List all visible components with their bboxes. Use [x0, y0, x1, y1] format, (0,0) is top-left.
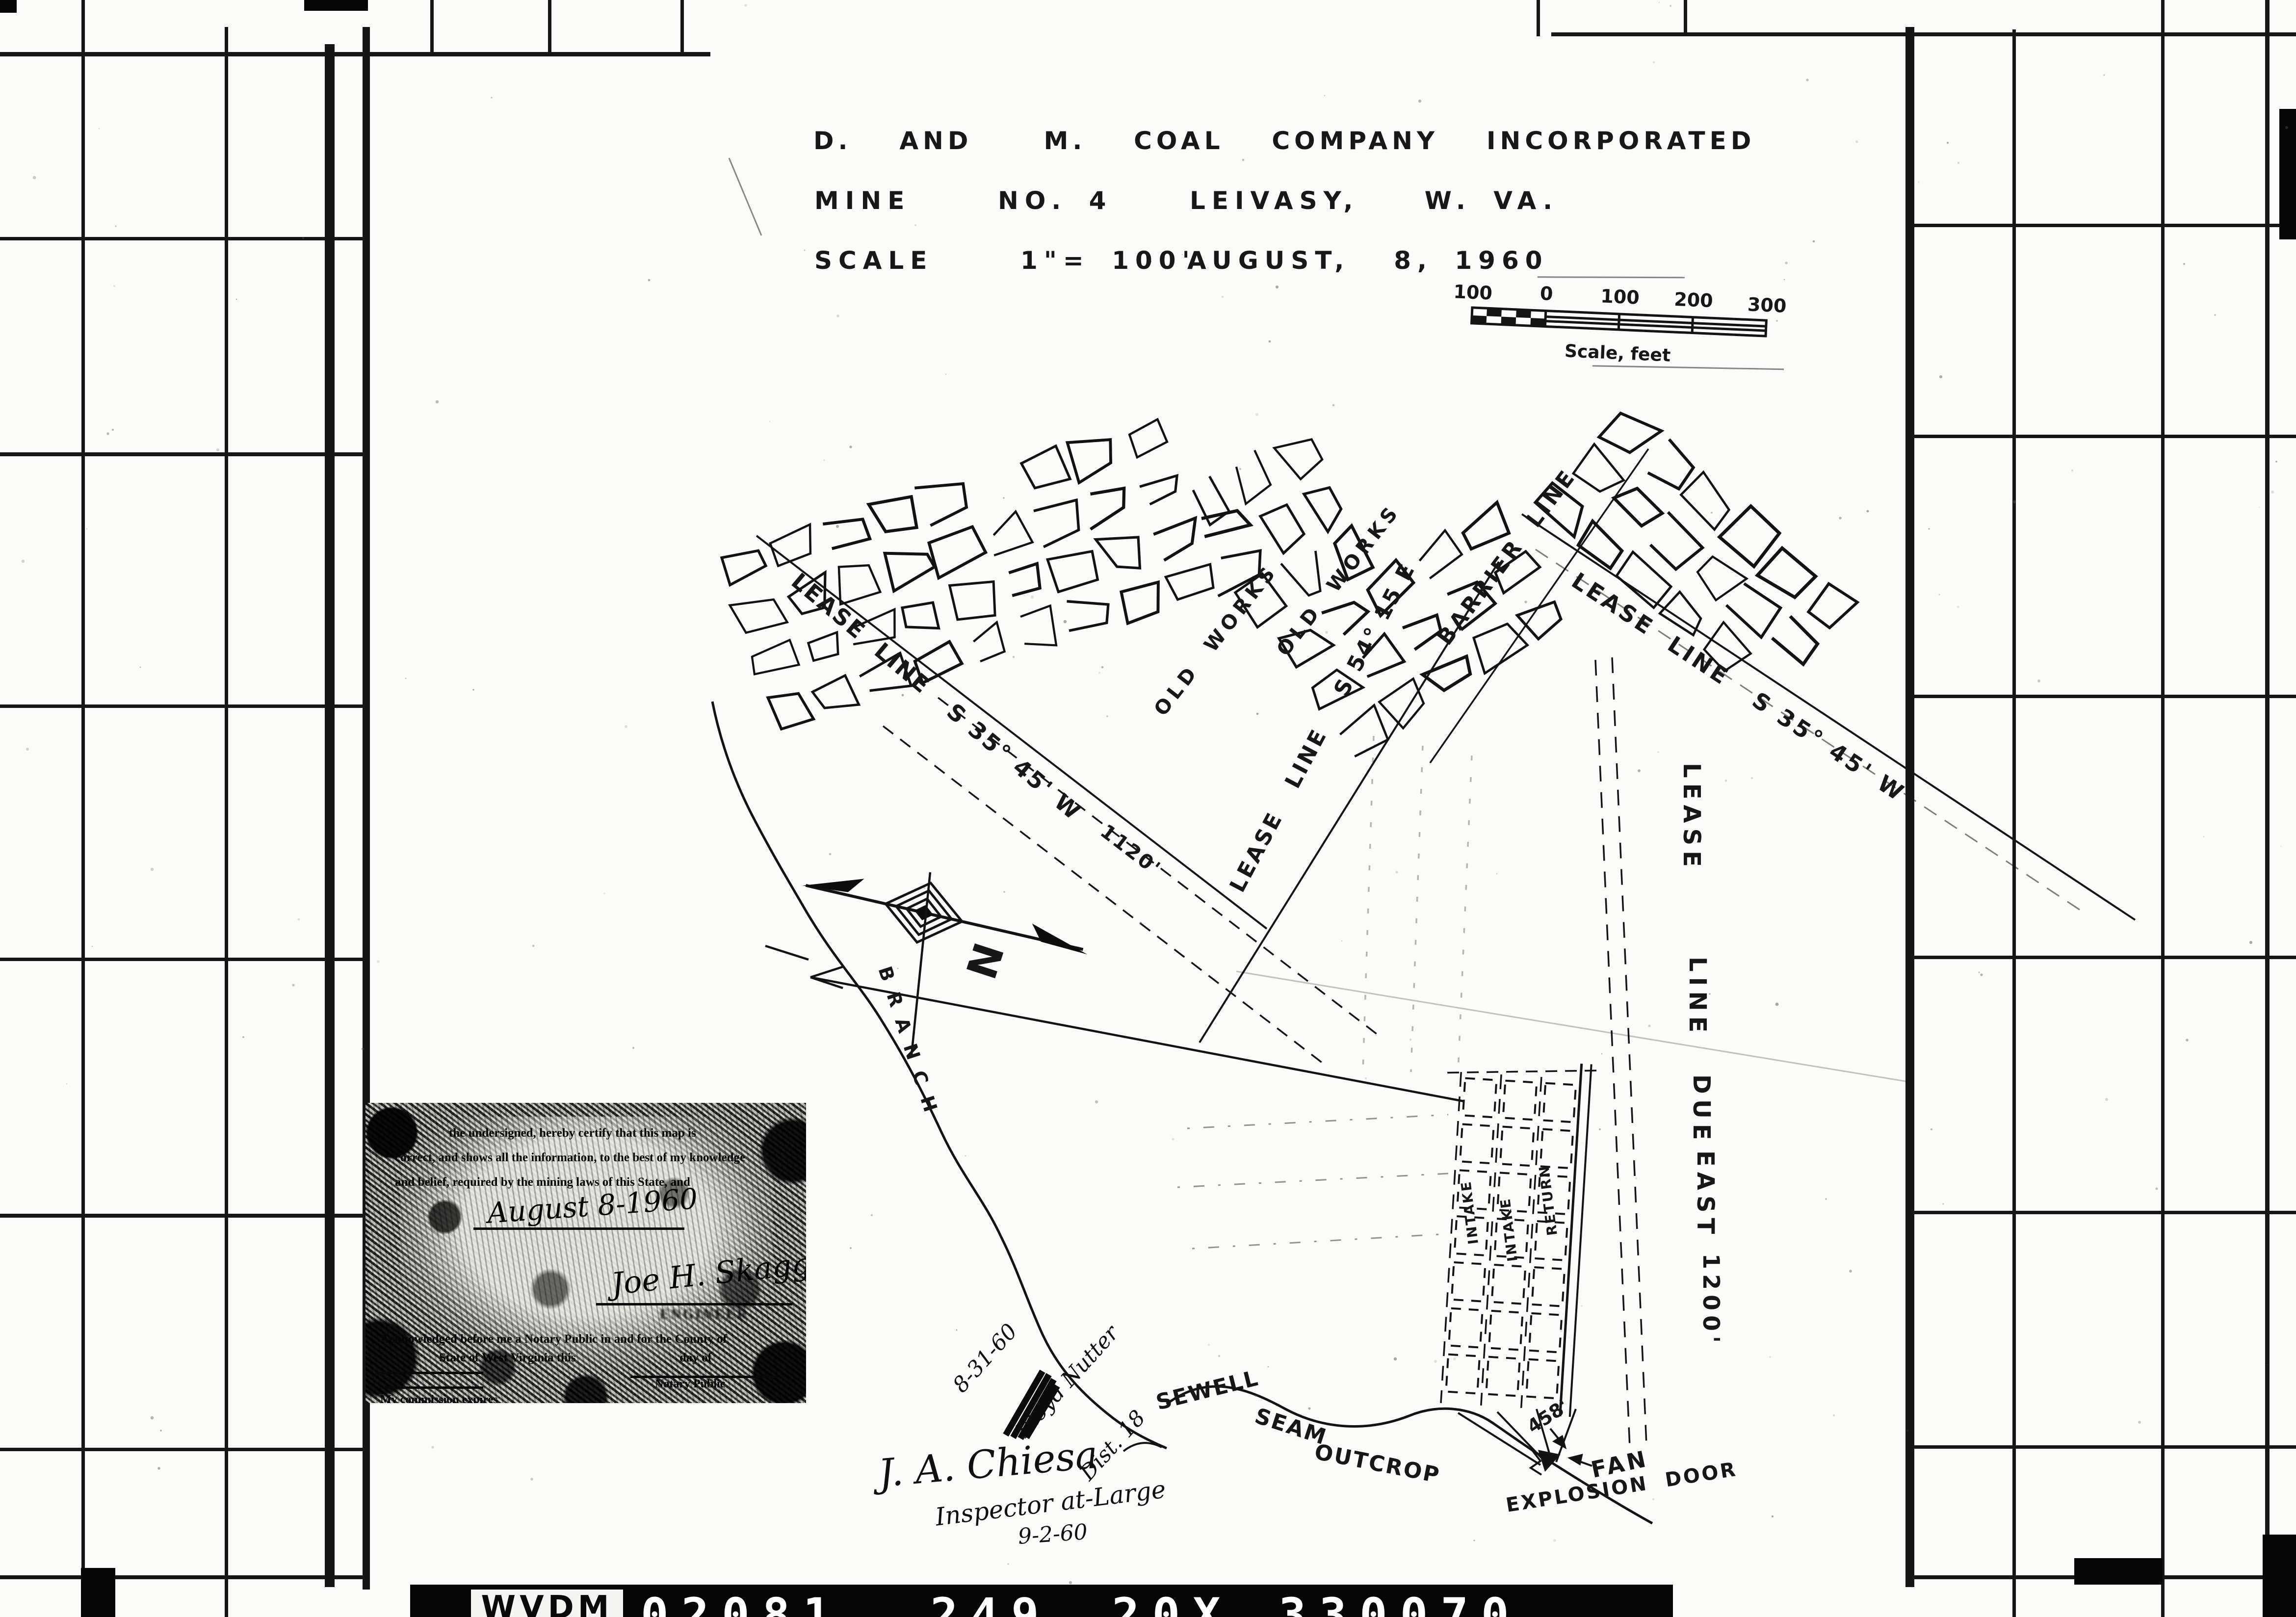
due-east-word-line: LINE: [1684, 957, 1711, 1038]
return-label: RETURN: [1536, 1164, 1560, 1236]
signature-underline: [596, 1303, 792, 1305]
film-code-label: WVDM: [471, 1590, 623, 1617]
mine-location: LEIVASY, W. VA.: [1190, 186, 1559, 215]
acknowledgement-line1: Acknowledged before me a Notary Public i…: [380, 1332, 727, 1346]
north-arrow: N: [791, 855, 1096, 1002]
blank-rule-2: [385, 1386, 483, 1389]
scale-tick: 200: [1673, 288, 1713, 312]
survey-line: [765, 946, 1464, 1101]
signature-caption: ENGINEER: [660, 1307, 749, 1323]
intake-label-b: INTAKE: [1497, 1197, 1521, 1262]
lease-and-barrier-lines: [729, 158, 2135, 1447]
due-east-word-lease: LEASE: [1678, 763, 1705, 872]
map-scale: SCALE 1"= 100': [814, 246, 1196, 275]
due-east-word-due: DUE: [1688, 1074, 1715, 1146]
north-label: N: [956, 937, 1013, 984]
lease-line-left-label: LEASE LINE S 35° 45' W: [786, 568, 1087, 826]
acknowledgement-line2b: day of: [679, 1351, 712, 1365]
film-code-3: 20X: [1112, 1589, 1233, 1617]
map-date: AUGUST, 8, 1960: [1187, 246, 1549, 275]
inspector-date: 9-2-60: [1017, 1519, 1088, 1549]
mine-number: MINE NO. 4: [814, 186, 1112, 215]
certification-block: the undersigned, hereby certify that thi…: [365, 1103, 806, 1403]
old-works-pillars: [722, 413, 1857, 756]
scanned-mine-map: 100 0 100 200 300 Scale, feet N: [0, 0, 2296, 1617]
scale-tick: 100: [1600, 285, 1640, 308]
acknowledgement-line2: State of West Virginia this: [439, 1351, 576, 1365]
branch-label: BRANCH: [874, 964, 945, 1126]
dim-458-label: 458': [1523, 1395, 1572, 1437]
date-underline: [473, 1227, 684, 1230]
scale-caption: Scale, feet: [1564, 341, 1671, 365]
film-code-4: 330070: [1278, 1589, 1522, 1617]
ink-scribble: [991, 1344, 1089, 1442]
film-code-2: 249: [930, 1589, 1052, 1617]
due-east-word-east: EAST: [1692, 1150, 1719, 1239]
due-east-word-1200: 1200': [1698, 1253, 1724, 1348]
dim-1120-label: 1120': [1096, 820, 1166, 881]
lease-line-right-label: LEASE LINE S 35° 45' W: [1567, 567, 1911, 807]
notary-label: Notary Public: [655, 1378, 725, 1391]
intake-label-a: INTAKE: [1458, 1179, 1482, 1245]
scale-tick: 100: [1453, 281, 1493, 304]
scale-tick: 300: [1747, 293, 1787, 316]
commission-label: My commission expires: [380, 1393, 498, 1403]
scale-tick: 0: [1539, 283, 1553, 305]
outcrop-word-outcrop: OUTCROP: [1312, 1439, 1442, 1488]
map-title: D. AND M. COAL COMPANY INCORPORATED: [813, 127, 1755, 155]
film-code-1: 02081: [641, 1589, 843, 1617]
blank-rule-1: [375, 1372, 483, 1374]
certification-line1: the undersigned, hereby certify that thi…: [449, 1126, 696, 1140]
certification-line2: correct, and shows all the information, …: [395, 1151, 745, 1165]
